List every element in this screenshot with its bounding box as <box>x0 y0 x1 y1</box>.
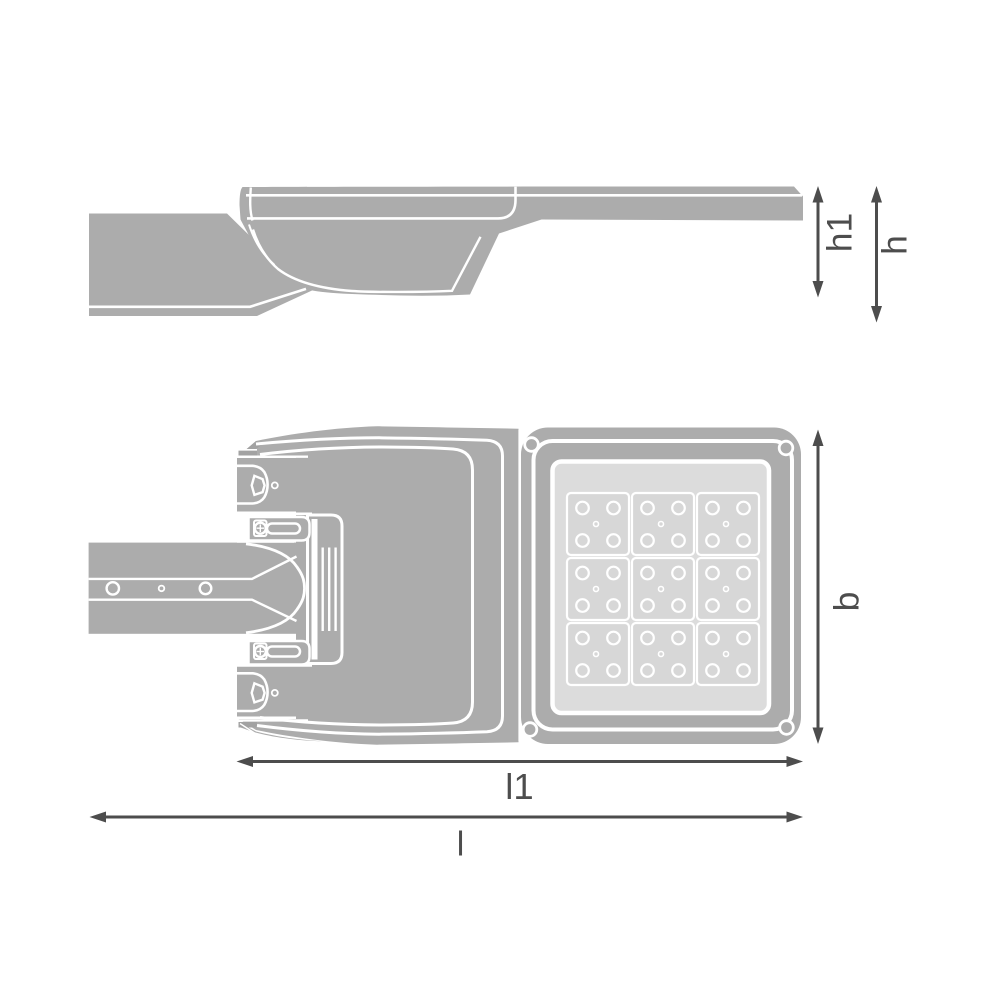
svg-text:l1: l1 <box>505 766 533 807</box>
svg-text:h: h <box>875 235 915 255</box>
svg-text:h1: h1 <box>820 213 860 253</box>
svg-text:l: l <box>457 826 465 864</box>
svg-text:b: b <box>827 592 867 612</box>
